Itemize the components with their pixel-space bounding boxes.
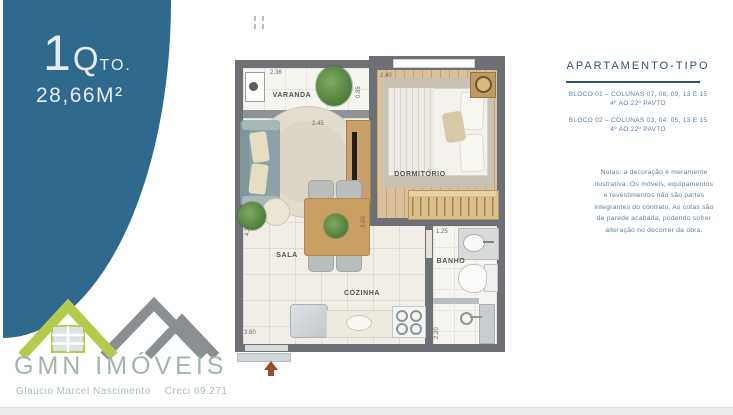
room-label-cozinha: COZINHA [340, 290, 384, 297]
note-line: alteração no decorrer da obra. [575, 225, 733, 237]
unit-quantity-q: Q [73, 40, 100, 78]
room-label-varanda: VARANDA [260, 92, 324, 99]
faucet [483, 241, 494, 243]
unit-quantity-suffix: TO. [99, 57, 131, 75]
apartment-type-title: APARTAMENTO-TIPO [553, 60, 723, 72]
brand-logo: GMN IMÓVEIS Glaucio Marcel Nascimento Cr… [8, 286, 230, 412]
room-label-dormitorio: DORMITÓRIO [386, 171, 454, 178]
shower-divider [433, 298, 479, 304]
block-list: BLOCO 01 – COLUNAS 07, 08, 09, 13 E 15 4… [548, 90, 728, 142]
dim-entry-width: 3.60 [244, 330, 256, 336]
dim-varanda-width: 2.36 [270, 70, 282, 76]
block-columns: BLOCO 01 – COLUNAS 07, 08, 09, 13 E 15 [548, 90, 728, 99]
shower-arm [470, 316, 482, 318]
block-columns: BLOCO 02 – COLUNAS 03, 04, 05, 13 E 15 [548, 116, 728, 125]
dim-varanda-depth: 0.85 [356, 86, 362, 98]
floor-plan: VARANDA DORMITÓRIO SALA COZINHA BANHO 2.… [228, 14, 505, 380]
dim-kitchen-depth: 3.00 [361, 216, 367, 228]
balcony-plant [316, 66, 352, 106]
water-heater-dial [249, 82, 258, 91]
dim-shower-depth: 2.20 [434, 327, 440, 339]
entry-door-gap [245, 345, 288, 351]
table-plant [324, 214, 348, 238]
unit-quantity-line: 1QTO. [43, 28, 132, 78]
title-divider [566, 81, 700, 83]
block-floors: 4º AO 22º PAVTO [548, 125, 728, 134]
shower-glass [479, 304, 495, 344]
legal-note: Notas: a decoração é meramente ilustrati… [575, 167, 733, 236]
block-item: BLOCO 01 – COLUNAS 07, 08, 09, 13 E 15 4… [548, 90, 728, 108]
nightstand-lamp [475, 76, 492, 93]
unit-quantity: 1 [43, 28, 71, 78]
dining-chair [336, 180, 362, 200]
sofa-cushion [248, 163, 269, 195]
entry-arrow-icon [264, 361, 278, 370]
wardrobe-hangers [412, 197, 494, 216]
room-label-sala: SALA [270, 252, 304, 259]
shower-head-icon [460, 312, 473, 325]
wardrobe-shelf [409, 191, 496, 196]
roofs-icon [8, 286, 230, 360]
side-table [262, 198, 290, 226]
toilet-bowl [458, 264, 487, 293]
dimension-tick [254, 16, 258, 29]
bathroom-sink [463, 234, 485, 252]
note-line: e revestimentos não são partes [575, 190, 733, 202]
unit-area: 28,66M² [36, 84, 124, 108]
dim-sala-opening: 2.45 [312, 121, 324, 127]
brand-name: GMN IMÓVEIS [14, 352, 228, 381]
dim-dorm-width: 2.40 [380, 73, 392, 79]
marketing-sheet: 1QTO. 28,66M² [0, 0, 733, 415]
note-line: Notas: a decoração é meramente [575, 167, 733, 179]
block-item: BLOCO 02 – COLUNAS 03, 04, 05, 13 E 15 4… [548, 116, 728, 134]
stove-burner [396, 310, 408, 322]
entry-arrow-stem [268, 370, 274, 376]
bedroom-window [393, 59, 475, 68]
sofa-back [240, 120, 249, 206]
stove-burner [410, 323, 422, 335]
refrigerator [290, 304, 328, 338]
note-line: de parede acabada, podendo sofrer [575, 213, 733, 225]
dining-chair [308, 180, 334, 200]
brand-subtitle: Glaucio Marcel Nascimento Creci 69.271 [16, 386, 230, 397]
stove-burner [396, 323, 408, 335]
kitchen-sink [346, 315, 372, 331]
room-label-banho: BANHO [435, 258, 467, 265]
footer-strip [0, 407, 733, 415]
note-line: ilustrativa. Os móveis, equipamentos [575, 179, 733, 191]
agent-name: Glaucio Marcel Nascimento [16, 386, 151, 397]
dim-banho-width: 1.25 [436, 229, 448, 235]
agent-license: Creci 69.271 [165, 386, 228, 397]
dim-sala-depth: 4.30 [245, 224, 251, 236]
living-plant [238, 202, 266, 230]
block-floors: 4º AO 22º PAVTO [548, 99, 728, 108]
wall-balcony-top [235, 60, 369, 68]
bed-duvet [388, 88, 434, 174]
bathroom-door [426, 230, 432, 258]
stove-burner [410, 310, 422, 322]
sofa-armrest [242, 120, 280, 130]
note-line: integrantes do contrato. As cotas são [575, 202, 733, 214]
dimension-tick [262, 16, 266, 29]
